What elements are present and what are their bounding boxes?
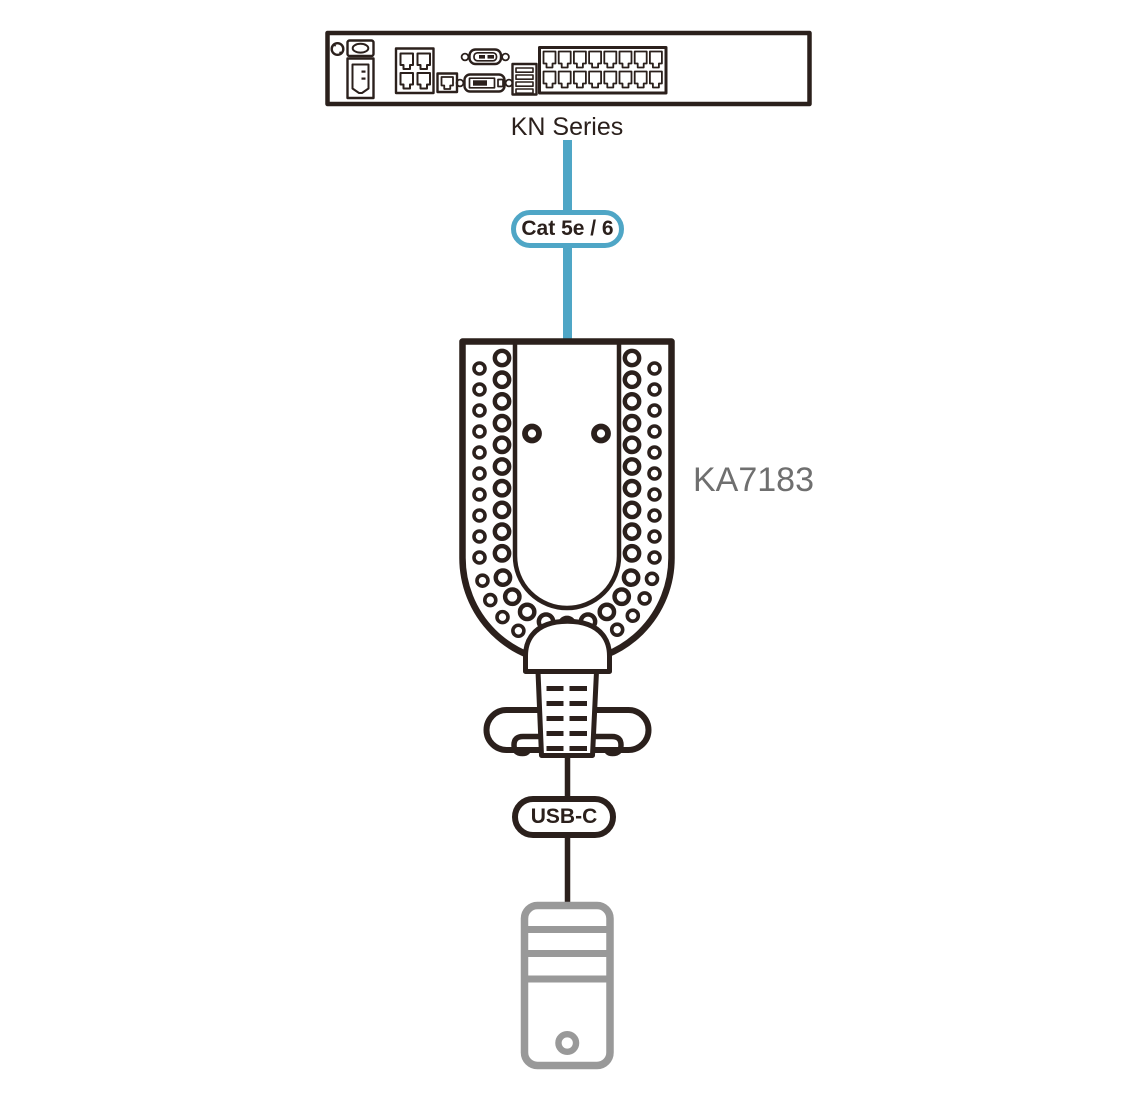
cat5e6-label-text: Cat 5e / 6 xyxy=(521,217,613,241)
computer-tower xyxy=(525,906,611,1066)
usb-c-cable-label: USB-C xyxy=(512,796,616,838)
strain-relief-boot xyxy=(526,621,610,671)
cable-grip xyxy=(538,672,597,756)
ka7183-label: KA7183 xyxy=(693,461,814,500)
kn-series-label: KN Series xyxy=(511,113,624,142)
ka7183-adapter xyxy=(463,342,672,756)
diagram-canvas xyxy=(0,0,1140,1100)
kvm-switch-rear-panel xyxy=(328,33,810,104)
usb-c-label-text: USB-C xyxy=(531,805,598,829)
cat5e6-cable-label: Cat 5e / 6 xyxy=(511,210,624,248)
diagram-stage: KN Series Cat 5e / 6 KA7183 USB-C xyxy=(0,0,1140,1100)
